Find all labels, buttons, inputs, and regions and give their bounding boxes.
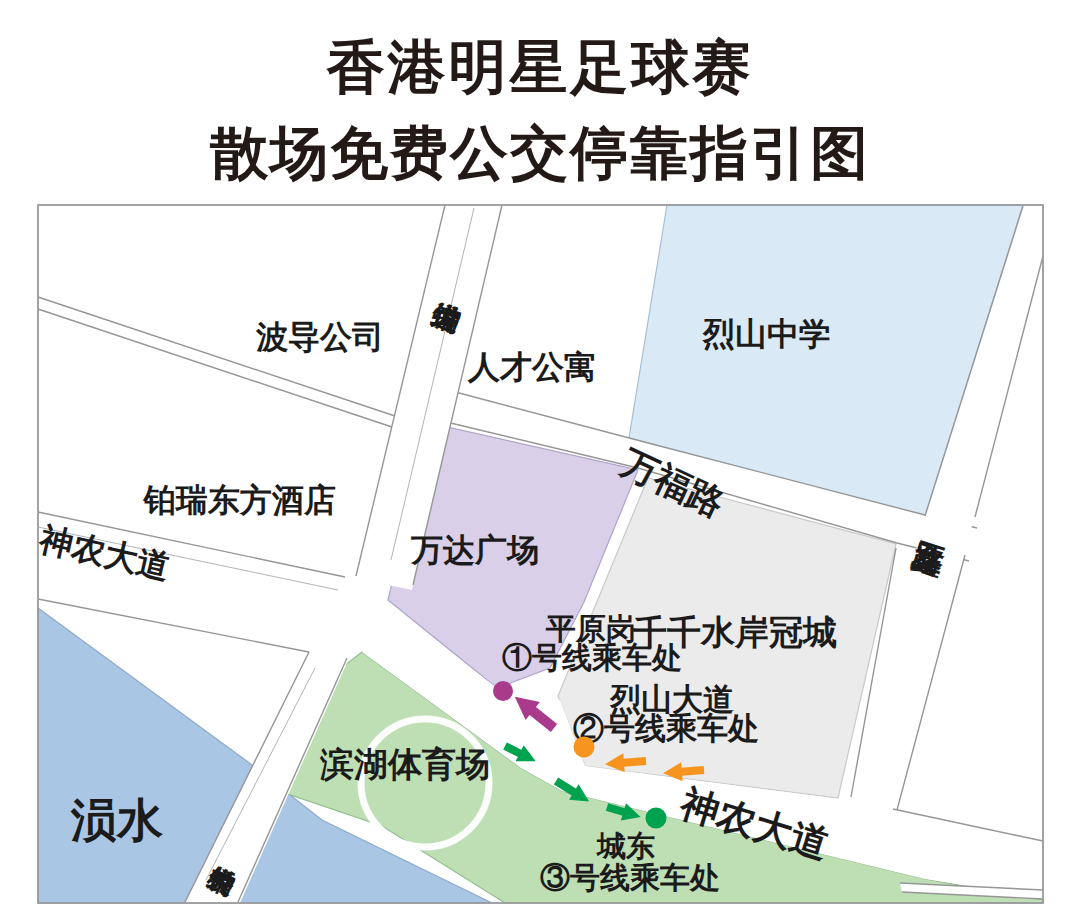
stop-dot-line1 xyxy=(493,681,513,701)
label-stop1-line: ①号线乘车处 xyxy=(502,641,682,674)
stop-dot-line2 xyxy=(574,737,595,758)
stop-dot-line3 xyxy=(646,808,667,829)
road-minor-north xyxy=(38,297,398,429)
label-stop2-line: ②号线乘车处 xyxy=(573,711,759,746)
route-arrow-line2-b xyxy=(678,770,704,772)
map-canvas: 波导公司 人才公寓 烈山中学 铂瑞东方酒店 万达广场 千千水岸冠城 滨湖体育场 … xyxy=(0,0,1080,924)
label-rencai-apartments: 人才公寓 xyxy=(467,349,596,385)
label-lieshan-middle-school: 烈山中学 xyxy=(702,316,831,352)
label-binhu-stadium: 滨湖体育场 xyxy=(319,745,490,783)
label-bodao-company: 波导公司 xyxy=(255,319,384,355)
transit-guide-poster: 香港明星足球赛 散场免费公交停靠指引图 xyxy=(0,0,1080,924)
label-wanda-plaza: 万达广场 xyxy=(410,532,539,568)
label-stop3-area: 城东 xyxy=(595,830,655,862)
label-yun-river: 涢水 xyxy=(70,794,163,846)
label-borui-oriental-hotel: 铂瑞东方酒店 xyxy=(142,482,336,518)
label-stop3-line: ③号线乘车处 xyxy=(540,861,720,894)
route-arrow-line2-a xyxy=(620,761,646,763)
